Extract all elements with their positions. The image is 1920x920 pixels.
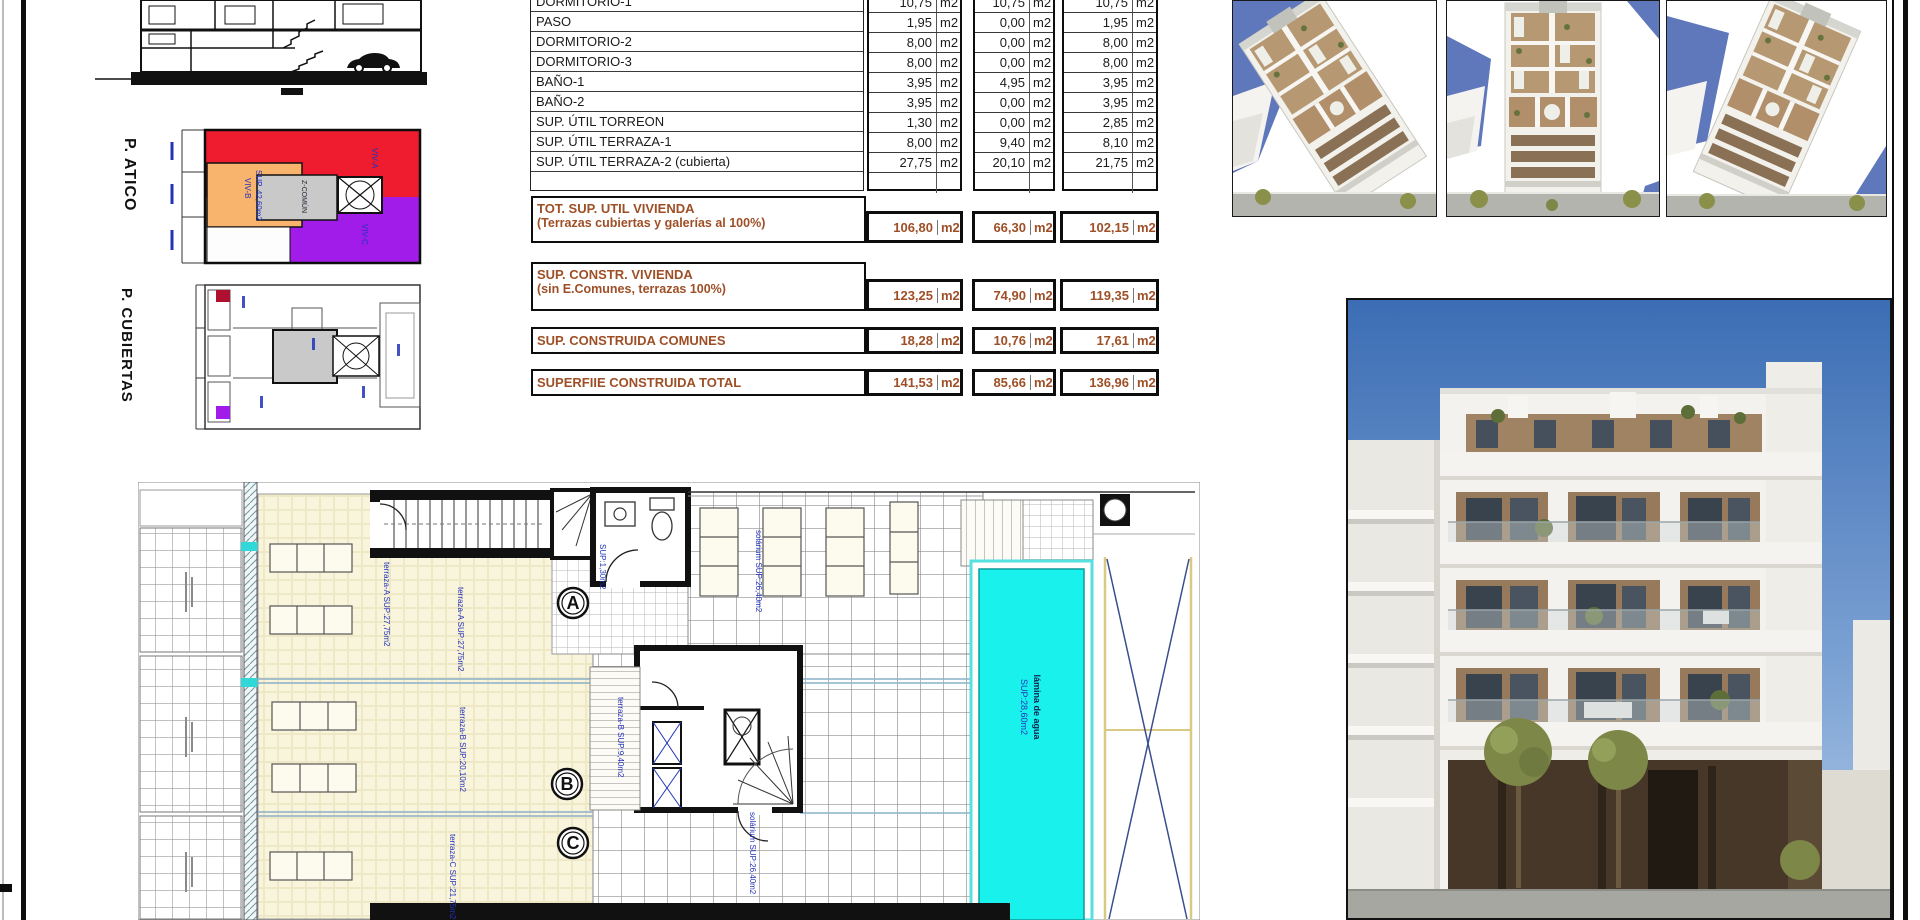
atico-dim-bracket (172, 130, 205, 263)
cell-unit: m2 (1029, 93, 1053, 112)
cell-value: 0,00 (975, 113, 1029, 132)
summary-line1: TOT. SUP. UTIL VIVIENDA (537, 201, 860, 216)
cell-unit: m2 (1029, 0, 1053, 12)
terraza-c-label: terraza-C SUP:21,75m2 (448, 834, 457, 920)
car-silhouette (347, 53, 400, 72)
cell-value (975, 173, 1029, 193)
cell-value: 1,30 (869, 113, 936, 132)
areas-table-col-viv-a: 10,75m2 1,95m2 8,00m2 8,00m2 3,95m2 3,95… (867, 0, 962, 191)
table-row-label: BAÑO-2 (531, 92, 863, 112)
summary-line1: SUPERFIIE CONSTRUIDA TOTAL (537, 375, 860, 390)
atico-viv-b-label: VIV-B (243, 178, 252, 198)
marker-b: B (561, 774, 574, 794)
cell-value: 3,95 (1064, 73, 1132, 92)
cell-unit: m2 (1132, 13, 1156, 32)
cell-unit (1029, 173, 1053, 193)
pool-label-name: lámina de agua (1032, 674, 1042, 740)
cell-value: 8,10 (1064, 133, 1132, 152)
table-row-label (531, 172, 863, 192)
bottom-wall (370, 903, 1010, 920)
summary-total-viv-b: 85,66m2 (972, 369, 1056, 396)
cell-value: 0,00 (975, 13, 1029, 32)
cell-unit: m2 (936, 153, 960, 172)
summary-comunes-label: SUP. CONSTRUIDA COMUNES (531, 327, 866, 354)
cell-value: 8,00 (1064, 53, 1132, 72)
areas-table-col-viv-c: 10,75m2 1,95m2 8,00m2 8,00m2 3,95m2 3,95… (1062, 0, 1158, 191)
skylight (1100, 494, 1130, 526)
cell-unit: m2 (1029, 73, 1053, 92)
cell-value: 3,95 (869, 93, 936, 112)
table-row-label: SUP. ÚTIL TERRAZA-2 (cubierta) (531, 152, 863, 172)
cell-unit: m2 (1132, 133, 1156, 152)
pool-label-area: SUP:28,60m2 (1019, 679, 1029, 735)
summary-total-util-label: TOT. SUP. UTIL VIVIENDA (Terrazas cubier… (531, 196, 866, 243)
atico-zone-comun (257, 175, 337, 220)
cell-value: 21,75 (1064, 153, 1132, 172)
cell-unit: m2 (1029, 53, 1053, 72)
cell-value: 8,00 (869, 133, 936, 152)
sheet-margin-line-left (2, 0, 4, 920)
pool-deck (961, 500, 1023, 566)
atico-color-plan: VIV-A VIV-B SUP. 42,60m2 VIV-C Z-COMÚN (150, 112, 430, 268)
summary-constr-viv-a: 123,25m2 (866, 279, 963, 311)
table-row-label: BAÑO-1 (531, 72, 863, 92)
swimming-pool: lámina de agua SUP:28,60m2 (971, 561, 1092, 920)
summary-line1: SUP. CONSTR. VIVIENDA (537, 267, 860, 282)
cell-unit: m2 (936, 133, 960, 152)
summary-comunes-viv-c: 17,61m2 (1060, 327, 1159, 354)
cubiertas-title: P. CUBIERTAS (118, 288, 135, 403)
cell-unit: m2 (1132, 33, 1156, 52)
aerial-render-panel-1 (1232, 0, 1437, 217)
table-row-label: SUP. ÚTIL TORREON (531, 112, 863, 132)
table-row-label: DORMITORIO-3 (531, 52, 863, 72)
atico-viv-b-sup: SUP. 42,60m2 (254, 170, 263, 222)
sheet-border-left (21, 0, 26, 920)
atico-title: P. ATICO (120, 138, 138, 212)
plan-sheet: P. ATICO VIV-A VIV-B SUP. 42,60m2 VIV-C … (0, 0, 1920, 920)
cell-value: 27,75 (869, 153, 936, 172)
neighbour-terrace-tiles (140, 490, 242, 919)
building-section-drawing (95, 0, 435, 100)
cell-unit (936, 173, 960, 193)
cell-unit: m2 (1132, 113, 1156, 132)
terraza-b-label: terraza-B SUP:20,10m2 (458, 707, 467, 792)
main-building (1440, 362, 1822, 920)
cell-unit: m2 (1029, 133, 1053, 152)
summary-total-viv-c: 136,96m2 (1060, 369, 1159, 396)
deck-label: terraza-B SUP:9,40m2 (616, 697, 625, 778)
summary-total-label: SUPERFIIE CONSTRUIDA TOTAL (531, 369, 866, 396)
cell-value: 3,95 (1064, 93, 1132, 112)
cell-value: 2,85 (1064, 113, 1132, 132)
summary-total-viv-a: 141,53m2 (866, 369, 963, 396)
cell-value: 3,95 (869, 73, 936, 92)
summary-line2: (Terrazas cubiertas y galerías al 100%) (537, 216, 860, 231)
cell-value: 10,75 (1064, 0, 1132, 12)
summary-total-util-viv-b: 66,30m2 (972, 211, 1056, 243)
cell-unit: m2 (1132, 73, 1156, 92)
summary-total-util-viv-c: 102,15m2 (1060, 211, 1159, 243)
cell-value: 9,40 (975, 133, 1029, 152)
cell-unit: m2 (1029, 13, 1053, 32)
cell-value (869, 173, 936, 193)
cell-value: 0,00 (975, 53, 1029, 72)
summary-comunes-viv-b: 10,76m2 (972, 327, 1056, 354)
cell-unit: m2 (936, 33, 960, 52)
stair-block (370, 490, 596, 558)
summary-constr-viv-label: SUP. CONSTR. VIVIENDA (sin E.Comunes, te… (531, 262, 866, 311)
table-row-label: PASO (531, 12, 863, 32)
aerial-render-panel-2 (1446, 0, 1660, 217)
cell-value: 8,00 (869, 33, 936, 52)
marker-c: C (567, 833, 580, 853)
solarium-label: solárium SUP:26,40m2 (754, 530, 763, 613)
floor-plan: A B C lámina de agua SUP:28,60m2 (138, 482, 1200, 920)
cell-value: 4,95 (975, 73, 1029, 92)
cell-value: 20,10 (975, 153, 1029, 172)
cell-value: 0,00 (975, 93, 1029, 112)
solarium-label-2: solárium SUP:26,40m2 (748, 812, 757, 895)
aerial-render-panel-3 (1666, 0, 1887, 217)
atico-zcomun-label: Z-COMÚN (300, 180, 309, 213)
cubiertas-roof-plan (172, 278, 428, 434)
table-row-label: DORMITORIO-2 (531, 32, 863, 52)
cell-unit: m2 (1029, 113, 1053, 132)
summary-constr-viv-b: 74,90m2 (972, 279, 1056, 311)
deck-strip (590, 667, 640, 810)
terraza-a-label-2: terraza-A SUP:27,75m2 (456, 587, 465, 672)
sheet-border-right-outer (1903, 0, 1908, 920)
cell-unit: m2 (1132, 0, 1156, 12)
summary-total-util-viv-a: 106,80m2 (866, 211, 963, 243)
sheet-border-right-inner (1892, 0, 1894, 920)
pavement (1348, 890, 1890, 920)
summary-comunes-viv-a: 18,28m2 (866, 327, 963, 354)
cell-unit: m2 (1132, 153, 1156, 172)
cell-value: 1,95 (1064, 13, 1132, 32)
summary-line1: SUP. CONSTRUIDA COMUNES (537, 333, 860, 348)
cell-value: 10,75 (975, 0, 1029, 12)
facade-render (1348, 300, 1890, 920)
street-tree-small (1780, 840, 1820, 880)
terraza-a-label: terraza-A SUP:27,75m2 (382, 562, 391, 647)
cell-unit (1132, 173, 1156, 193)
areas-table-col-viv-b: 10,75m2 0,00m2 0,00m2 0,00m2 4,95m2 0,00… (973, 0, 1055, 191)
cell-unit: m2 (936, 113, 960, 132)
cell-unit: m2 (1132, 93, 1156, 112)
cell-unit: m2 (936, 93, 960, 112)
cell-value: 0,00 (975, 33, 1029, 52)
torreon-core (637, 648, 800, 841)
cubiertas-purple-mark (216, 406, 230, 419)
cell-unit: m2 (936, 53, 960, 72)
table-row-label: DORMITORIO-1 (531, 0, 863, 12)
cell-unit: m2 (1132, 53, 1156, 72)
fold-mark (0, 884, 12, 892)
table-row-label: SUP. ÚTIL TERRAZA-1 (531, 132, 863, 152)
adjacent-building-left (1348, 440, 1440, 920)
summary-constr-viv-c: 119,35m2 (1060, 279, 1159, 311)
cell-unit: m2 (1029, 153, 1053, 172)
cubiertas-torreon (273, 330, 337, 383)
cell-value (1064, 173, 1132, 193)
ground-hatch (131, 72, 427, 85)
cell-unit: m2 (936, 73, 960, 92)
atico-viv-a-label: VIV-A (370, 148, 379, 169)
cell-unit: m2 (936, 0, 960, 12)
cell-unit: m2 (936, 13, 960, 32)
cell-value: 8,00 (869, 53, 936, 72)
cell-unit: m2 (1029, 33, 1053, 52)
cell-value: 8,00 (1064, 33, 1132, 52)
summary-line2: (sin E.Comunes, terrazas 100%) (537, 282, 860, 297)
cell-value: 1,95 (869, 13, 936, 32)
torreon-label: SUP:1,30m2 (598, 544, 607, 590)
cell-value: 10,75 (869, 0, 936, 12)
cubiertas-red-mark (216, 290, 230, 302)
atico-viv-c-label: VIV-C (360, 224, 369, 245)
areas-table-labels: DORMITORIO-1 PASO DORMITORIO-2 DORMITORI… (530, 0, 864, 191)
marker-a: A (567, 593, 580, 613)
